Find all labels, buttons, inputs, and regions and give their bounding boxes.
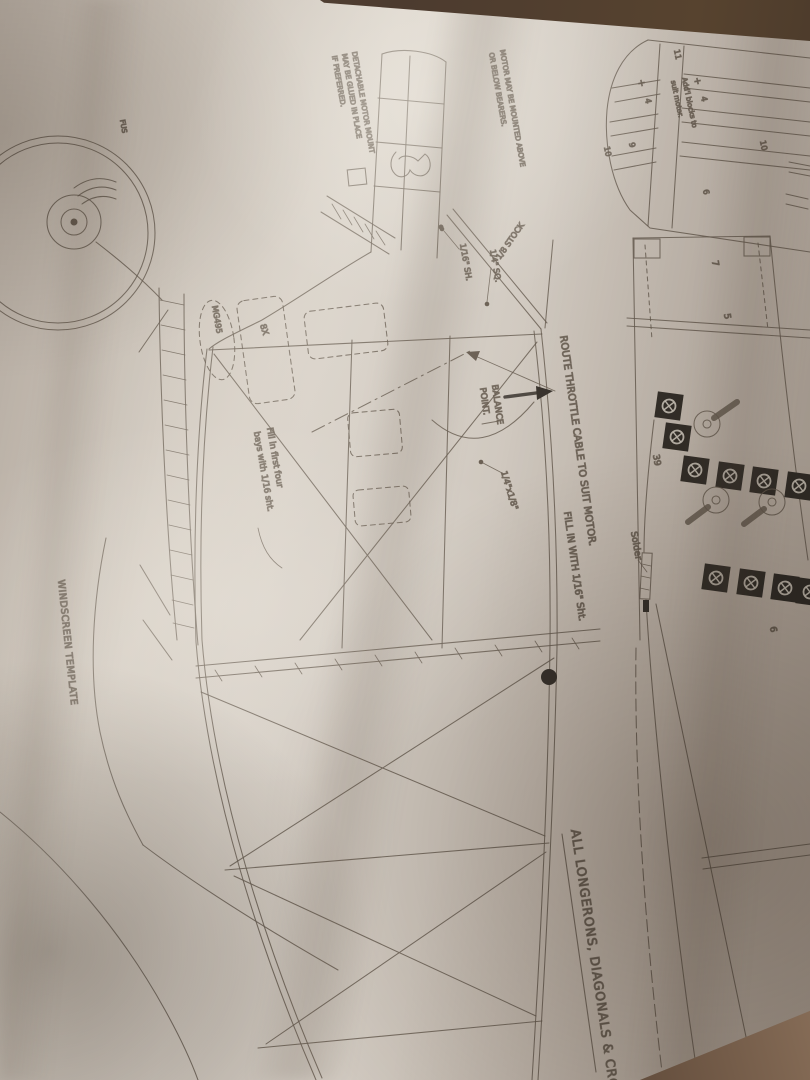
servo-screw	[784, 471, 810, 500]
windscreen-template-drawing	[0, 538, 338, 1080]
cable-route-line	[636, 648, 663, 1080]
servo-screw	[680, 455, 709, 484]
wheel-rim	[0, 143, 148, 323]
plus-mark-a: +	[635, 79, 646, 88]
sixteenth-sht-label: 1/16" SH.	[458, 243, 473, 282]
servo-screw	[654, 391, 683, 420]
windscreen-template-label: WINDSCREEN TEMPLATE	[55, 579, 79, 706]
servo-arm	[688, 487, 729, 522]
part-number-10a: 10	[602, 146, 613, 158]
throttle-cable-arrow	[466, 351, 555, 391]
part-number-4a: 4	[643, 98, 653, 105]
servo-arm	[744, 489, 785, 524]
balance-point-label-1: BALANCE	[489, 384, 504, 425]
wing-dowel	[541, 669, 557, 685]
stock-label: 1/8 STOCK	[494, 221, 526, 262]
balance-point-label-2: POINT.	[477, 387, 491, 416]
photo-of-model-plane-plan: { "colors": { "paper": "#cdc5bb", "table…	[0, 0, 810, 1080]
servo-screw	[701, 563, 730, 592]
plan-line-art: FUS WINDSCREEN TEMPLATE	[0, 0, 810, 1080]
all-longerons-label: ALL LONGERONS, DIAGONALS & CROSS	[568, 828, 624, 1080]
part-number-6b: 6	[701, 189, 711, 196]
part-number-5: 5	[721, 313, 732, 320]
fus-label: FUS	[118, 119, 128, 134]
wheel-outer	[0, 136, 155, 330]
part-number-9: 9	[627, 142, 637, 149]
wheel-leader	[96, 242, 162, 300]
balance-arrowhead	[536, 386, 553, 400]
part-number-10b: 10	[758, 140, 769, 152]
pushrods	[644, 420, 755, 1080]
doubler-outline	[303, 302, 388, 359]
doubler-outline	[353, 486, 412, 527]
solder-label: Solder	[628, 531, 643, 561]
servo-screw	[770, 573, 799, 602]
servo-screws	[654, 391, 810, 606]
servo-screw	[715, 461, 744, 490]
doubler-outline	[347, 409, 403, 457]
eight-x-label: 8X	[257, 323, 270, 337]
part-number-6a: 6	[767, 626, 778, 634]
crosshatch	[160, 300, 194, 628]
wheel-drawing	[0, 136, 162, 330]
part-number-39: 39	[650, 454, 662, 467]
spring-coil	[74, 179, 116, 204]
part-number-11: 11	[672, 49, 683, 61]
solder-connector	[640, 553, 652, 612]
part-number-7: 7	[709, 260, 720, 267]
servo-screw	[662, 422, 691, 451]
mg495-label: MG495	[210, 305, 224, 335]
battery-outline	[236, 295, 296, 404]
quarter-by-eighth-label: 1/4"x1/8"	[498, 470, 519, 511]
servo-arm	[694, 402, 737, 437]
servo-tray-top-view	[627, 236, 810, 1080]
fill-in-label: FILL IN WITH 1/16" Sht.	[561, 511, 587, 622]
fuselage-side-view	[139, 51, 600, 1080]
plus-mark-b: +	[691, 77, 702, 86]
part-number-4b: 4	[699, 96, 709, 103]
servo-screw	[736, 568, 765, 597]
motor-mount-hook	[391, 152, 430, 177]
bearer-end	[347, 168, 367, 186]
